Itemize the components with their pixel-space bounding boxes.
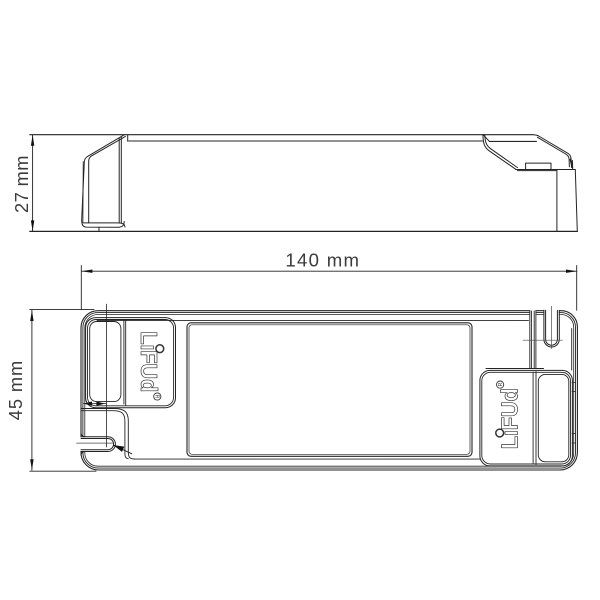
svg-text:140 mm: 140 mm	[285, 249, 360, 270]
svg-text:27 mm: 27 mm	[11, 155, 32, 213]
svg-text:LıFUd: LıFUd	[497, 388, 523, 449]
svg-text:45 mm: 45 mm	[5, 360, 26, 420]
svg-text:R: R	[153, 395, 159, 399]
svg-text:R: R	[498, 383, 504, 387]
svg-text:LıFUd: LıFUd	[136, 331, 162, 392]
